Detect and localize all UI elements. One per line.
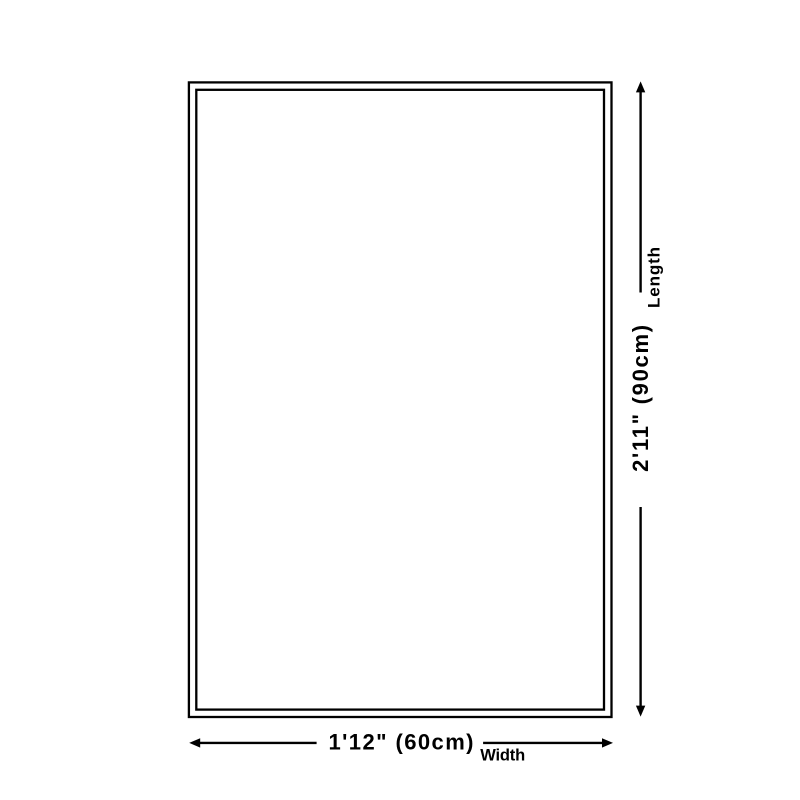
svg-text:1'12" (60cm): 1'12" (60cm): [329, 729, 474, 754]
svg-text:Width: Width: [480, 747, 525, 765]
svg-text:2'11" (90cm): 2'11" (90cm): [628, 325, 653, 472]
svg-text:Length: Length: [645, 247, 664, 308]
